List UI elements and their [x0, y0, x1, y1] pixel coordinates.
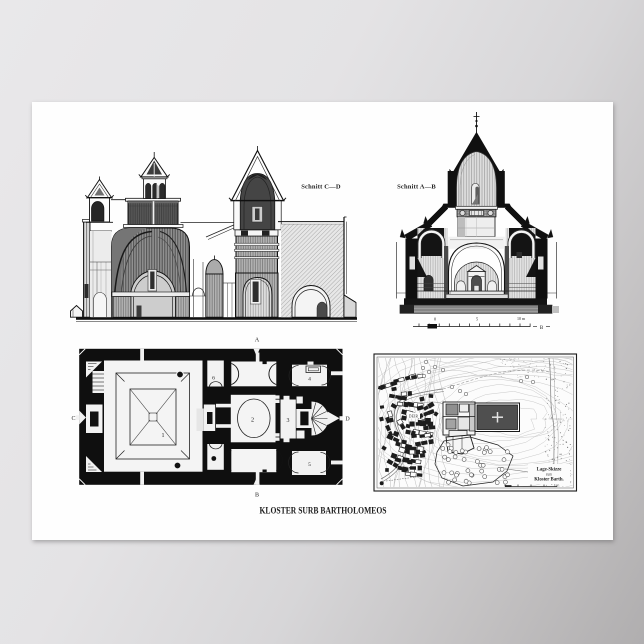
svg-text:DEIR: DEIR — [409, 414, 419, 418]
svg-text:A: A — [255, 337, 260, 344]
svg-text:5: 5 — [476, 317, 478, 322]
svg-text:10 m: 10 m — [517, 316, 526, 321]
svg-text:6: 6 — [212, 376, 215, 382]
svg-text:Schnitt A—B: Schnitt A—B — [397, 184, 436, 191]
svg-text:5: 5 — [308, 462, 311, 468]
svg-text:3: 3 — [287, 418, 290, 424]
svg-text:1: 1 — [162, 433, 165, 439]
svg-text:zum: zum — [546, 473, 552, 477]
svg-text:B: B — [540, 326, 544, 331]
svg-text:Kloster Barth.: Kloster Barth. — [534, 478, 564, 483]
svg-text:C: C — [71, 416, 75, 422]
svg-text:Schnitt C—D: Schnitt C—D — [301, 184, 341, 191]
svg-text:0: 0 — [434, 317, 436, 322]
svg-text:KLOSTER SURB BARTHOLOMEOS: KLOSTER SURB BARTHOLOMEOS — [260, 507, 387, 517]
svg-text:B: B — [255, 493, 259, 499]
svg-text:D: D — [345, 417, 350, 423]
svg-text:4: 4 — [308, 377, 311, 383]
svg-text:2: 2 — [251, 417, 254, 424]
